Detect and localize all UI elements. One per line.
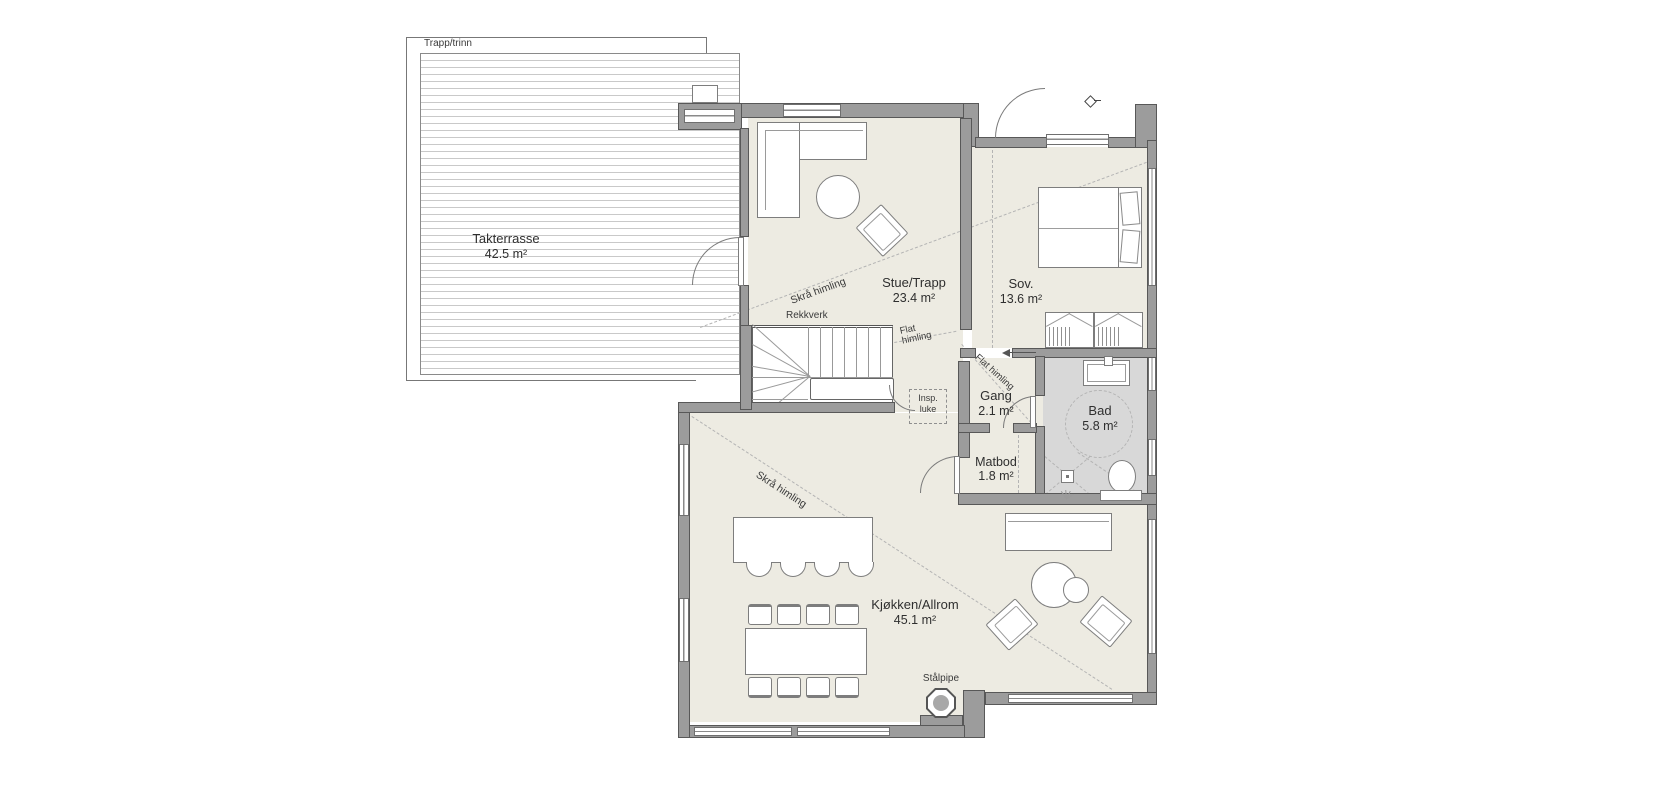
room-area: 5.8 m²: [1056, 419, 1144, 433]
bed: [1038, 187, 1142, 268]
corner-marker-icon: [1084, 95, 1097, 108]
wardrobe-hangers: [1049, 327, 1070, 346]
wall-gang-top-right: [1012, 348, 1157, 358]
room-area: 13.6 m²: [976, 292, 1066, 306]
window-right-living: [1148, 519, 1156, 654]
window-right-bad-1: [1148, 356, 1156, 391]
room-name: Takterrasse: [441, 232, 571, 247]
wardrobe-gable-line: [1046, 313, 1070, 327]
window-bottom-2: [797, 727, 890, 736]
sofa-living: [1005, 513, 1112, 551]
room-label-sov: Sov. 13.6 m²: [976, 277, 1066, 306]
room-label-matbod: Matbod 1.8 m²: [957, 455, 1035, 484]
wardrobe-2: [1094, 312, 1143, 348]
room-area: 1.8 m²: [957, 469, 1035, 483]
floor-plan-canvas: Trapp/trinn Takterrasse 42.5 m²: [0, 0, 1670, 800]
sofa-back-line-h: [765, 130, 863, 131]
sov-sliding-door-arrow: [1002, 349, 1010, 357]
corner-sofa-left: [757, 122, 800, 218]
sov-sliding-door-line: [1010, 352, 1036, 353]
toilet-tank: [1100, 490, 1142, 501]
stair-tread: [808, 327, 809, 377]
sink-tap: [1104, 356, 1113, 366]
room-name: Stue/Trapp: [858, 276, 970, 291]
sink-basin: [1087, 364, 1126, 382]
room-area: 42.5 m²: [441, 247, 571, 261]
room-area: 2.1 m²: [961, 404, 1031, 418]
stair-lower-tread: [752, 399, 808, 400]
room-area: 23.4 m²: [858, 291, 970, 305]
wardrobe-gable-line: [1095, 313, 1119, 327]
sov-exterior-door-leaf: [1046, 134, 1109, 145]
wardrobe-gable-line: [1118, 313, 1142, 327]
sov-ceiling-boundary: [992, 150, 993, 348]
window-bottom-1: [694, 727, 792, 736]
bed-center-line: [1039, 228, 1118, 229]
terrace-door-leaf: [738, 237, 744, 286]
room-name: Kjøkken/Allrom: [849, 598, 981, 613]
bed-headboard-line: [1118, 188, 1119, 267]
wall-bad-west-upper: [1035, 356, 1045, 396]
coffee-table-small: [1063, 577, 1089, 603]
terrace-outline-left: [406, 37, 407, 381]
window-top-bump: [684, 109, 735, 123]
roof-vent: [692, 85, 718, 103]
dining-chair: [806, 604, 830, 625]
stair-tread: [856, 327, 857, 377]
wall-step-bottomright: [963, 690, 985, 738]
wall-sov-top-left: [975, 137, 1047, 148]
room-name: Sov.: [976, 277, 1066, 292]
insp-luke-line1: Insp.: [910, 393, 946, 404]
room-name: Bad: [1056, 404, 1144, 419]
wall-kitchen-top: [678, 402, 895, 413]
pillow: [1120, 229, 1141, 263]
stair-tread: [868, 327, 869, 377]
window-bottom-right: [1008, 694, 1133, 703]
dining-chair: [748, 604, 772, 625]
corner-marker-stem: [1094, 100, 1101, 101]
wardrobe-gable-line: [1069, 313, 1093, 327]
room-label-stue: Stue/Trapp 23.4 m²: [858, 276, 970, 305]
wall-gang-matbod-left: [958, 423, 990, 433]
wall-stue-left-upper: [740, 128, 749, 237]
dining-chair: [835, 677, 859, 698]
wall-stair-left: [740, 325, 752, 410]
sink: [1083, 360, 1130, 386]
window-right-sov: [1148, 168, 1156, 286]
stair-tread: [880, 327, 881, 377]
window-top-stue: [783, 104, 841, 117]
stalpipe-label: Stålpipe: [911, 673, 971, 684]
sofa-back-line: [1008, 521, 1109, 522]
room-label-gang: Gang 2.1 m²: [961, 389, 1031, 418]
terrace-outline-bottom: [406, 380, 696, 381]
toilet-bowl: [1108, 460, 1136, 493]
shower-drain: [1061, 470, 1074, 483]
window-left-1: [679, 444, 689, 516]
stair-handrail: [810, 378, 894, 400]
room-label-kjokken: Kjøkken/Allrom 45.1 m²: [849, 598, 981, 627]
wall-gang-top-left: [960, 348, 976, 358]
room-name: Gang: [961, 389, 1031, 404]
room-name: Matbod: [957, 455, 1035, 469]
wardrobe-hangers: [1098, 327, 1119, 346]
round-table-stue: [816, 175, 860, 219]
wall-bad-west-lower: [1035, 426, 1045, 498]
window-left-2: [679, 598, 689, 662]
dining-chair: [806, 677, 830, 698]
dining-chair: [777, 677, 801, 698]
sov-exterior-door-arc: [995, 88, 1045, 138]
insp-luke-line2: luke: [910, 404, 946, 415]
insp-luke-box: Insp. luke: [909, 389, 947, 424]
wall-stue-left-lower: [740, 285, 749, 327]
kitchen-island: [733, 517, 873, 563]
stair-tread: [832, 327, 833, 377]
pillow: [1120, 191, 1141, 225]
drain-dot: [1066, 475, 1069, 478]
dining-chair: [777, 604, 801, 625]
stair-tread: [820, 327, 821, 377]
sofa-back-line-v: [765, 130, 766, 210]
room-area: 45.1 m²: [849, 613, 981, 627]
room-label-bad: Bad 5.8 m²: [1056, 404, 1144, 433]
stair-tread: [844, 327, 845, 377]
chimney-pipe: [933, 695, 949, 711]
trapp-trinn-label: Trapp/trinn: [424, 38, 472, 49]
room-label-takterrasse: Takterrasse 42.5 m²: [441, 232, 571, 261]
rekkverk-label: Rekkverk: [786, 310, 828, 321]
window-right-bad-2: [1148, 439, 1156, 476]
dining-chair: [748, 677, 772, 698]
dining-table: [745, 628, 867, 675]
wardrobe-1: [1045, 312, 1094, 348]
